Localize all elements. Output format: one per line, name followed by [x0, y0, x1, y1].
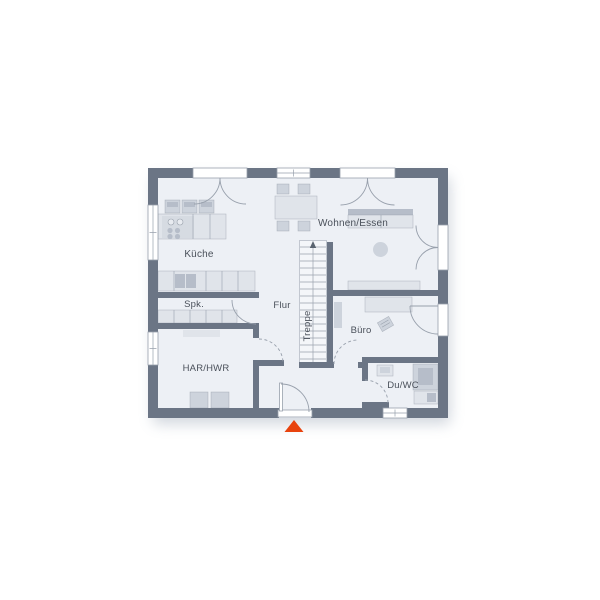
- sink-icon: [168, 219, 174, 225]
- chair: [298, 221, 310, 231]
- room-label-har-hwr: HAR/HWR: [183, 363, 230, 374]
- window-kitchen-left: [148, 205, 158, 260]
- room-label-spk: Spk.: [184, 299, 204, 310]
- desk: [365, 297, 412, 312]
- lowboard: [348, 281, 420, 290]
- sideboard-top: [348, 209, 413, 215]
- room-label-wohnen-essen: Wohnen/Essen: [318, 218, 388, 229]
- room-label-treppe: Treppe: [302, 311, 313, 342]
- chair: [277, 184, 289, 194]
- staircase: [300, 241, 327, 368]
- chair: [277, 221, 289, 231]
- kitchen-lower-cabinets: [158, 271, 255, 291]
- office-shelf: [334, 302, 342, 328]
- window-bath-bottom: [383, 408, 407, 418]
- window-top: [277, 168, 310, 178]
- room-label-buero: Büro: [351, 325, 372, 336]
- washer-icon: [190, 392, 208, 408]
- utility-shelf: [183, 330, 220, 337]
- chair: [298, 184, 310, 194]
- dining-table: [275, 196, 317, 219]
- room-label-du-wc: Du/WC: [387, 380, 419, 391]
- floor-plan-canvas: Küche Spk. Flur Treppe Wohnen/Essen Büro…: [0, 0, 600, 600]
- floor-plan: Küche Spk. Flur Treppe Wohnen/Essen Büro…: [0, 0, 600, 600]
- dryer-icon: [211, 392, 229, 408]
- pantry-shelves: [158, 310, 237, 323]
- window-utility-left: [148, 332, 158, 365]
- room-label-kueche: Küche: [184, 249, 214, 260]
- room-label-flur: Flur: [273, 300, 290, 311]
- round-rug: [373, 242, 388, 257]
